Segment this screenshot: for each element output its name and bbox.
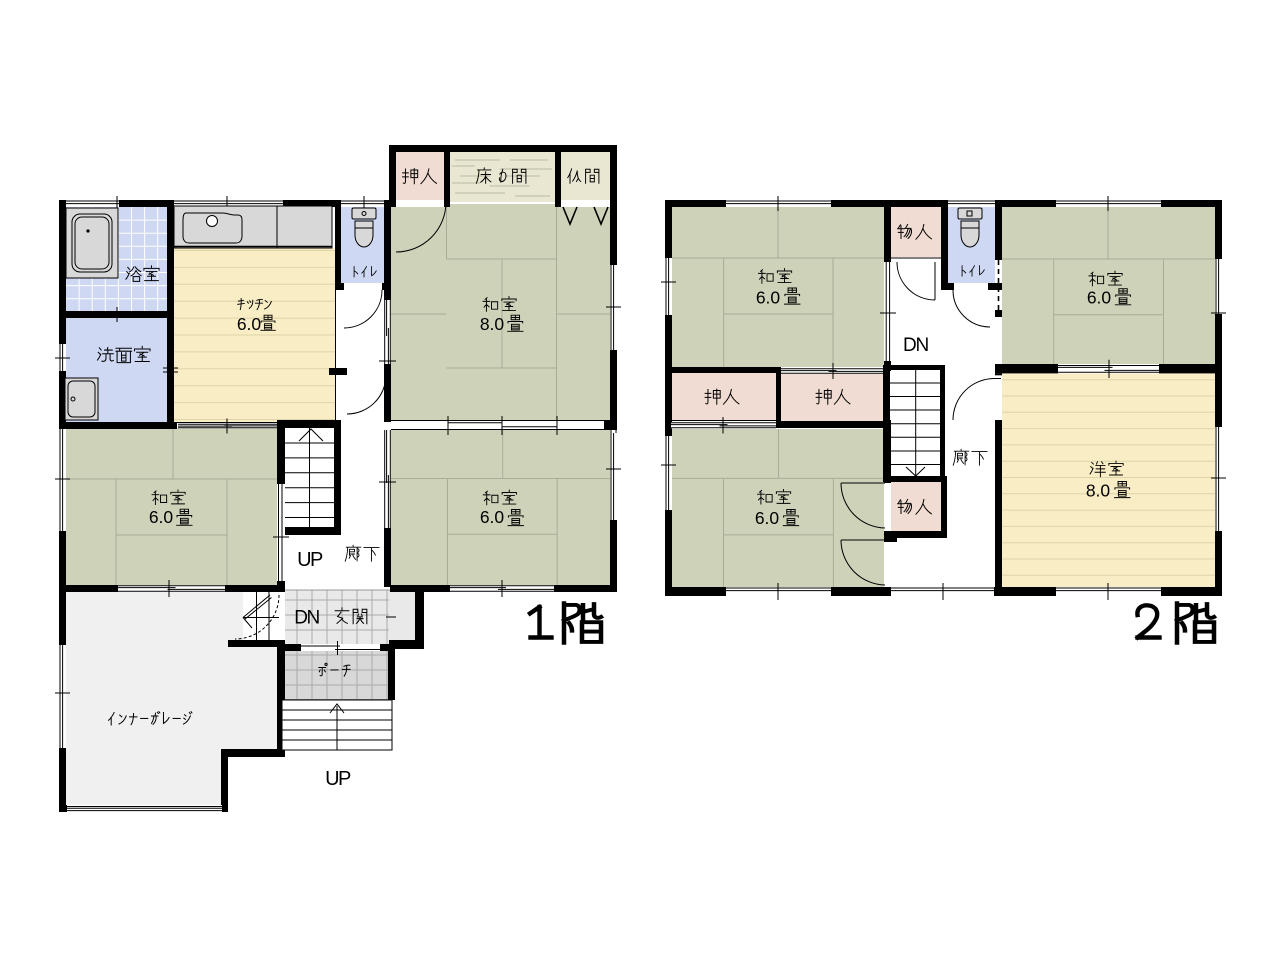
svg-text:6.0: 6.0 <box>149 507 174 527</box>
svg-text:UP: UP <box>297 549 323 571</box>
svg-text:6.0: 6.0 <box>237 314 262 334</box>
svg-text:6.0: 6.0 <box>756 288 781 308</box>
svg-text:6.0: 6.0 <box>480 507 505 527</box>
svg-text:8.0: 8.0 <box>480 314 505 334</box>
svg-text:DN: DN <box>294 608 319 629</box>
svg-text:6.0: 6.0 <box>755 508 780 528</box>
svg-text:8.0: 8.0 <box>1086 481 1111 501</box>
svg-text:6.0: 6.0 <box>1087 288 1112 308</box>
svg-text:UP: UP <box>325 768 351 790</box>
svg-text:DN: DN <box>903 335 929 356</box>
